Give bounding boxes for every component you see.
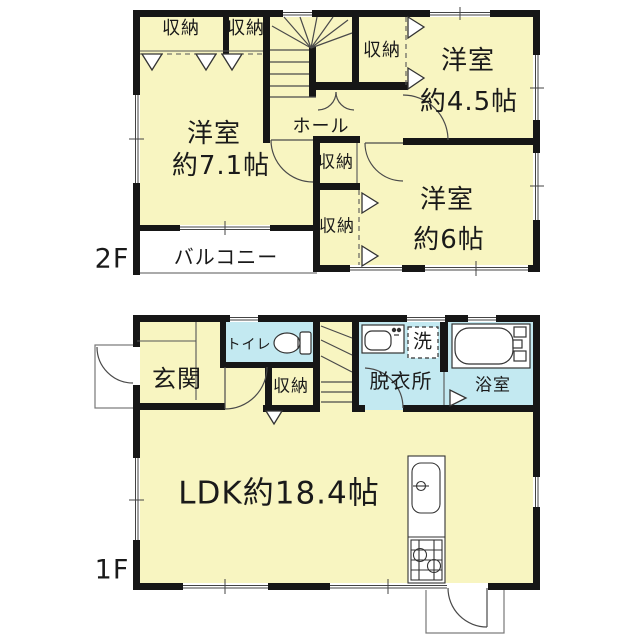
- bathtub-icon: [452, 324, 530, 368]
- room71-size: 約7.1帖: [172, 153, 270, 179]
- closet2f-e-label: 収納: [319, 219, 355, 236]
- room6-name: 洋室: [420, 187, 474, 213]
- entrance-label: 玄関: [152, 367, 202, 391]
- bathroom-label: 浴室: [475, 378, 511, 395]
- balcony-label: バルコニー: [174, 247, 279, 267]
- closet2f-c-label: 収納: [363, 42, 401, 60]
- washbasin-icon: [362, 325, 404, 353]
- back-porch: [426, 588, 504, 633]
- closet2f-a-label: 収納: [162, 20, 200, 38]
- floor2-label: 2F: [95, 246, 130, 273]
- toilet-icon: [274, 332, 311, 354]
- toilet-label: トイレ: [227, 338, 272, 352]
- entrance-porch: [95, 345, 135, 408]
- dressing-room-label: 脱衣所: [370, 371, 433, 391]
- room45-name: 洋室: [441, 48, 495, 74]
- hall-label: ホール: [293, 118, 350, 136]
- room71-name: 洋室: [187, 121, 241, 147]
- closet2f-d-label: 収納: [318, 155, 354, 172]
- room6-size: 約6帖: [413, 227, 485, 253]
- closet2f-b-label: 収納: [227, 20, 265, 38]
- closet1f-label: 収納: [273, 379, 309, 396]
- ldk-label: LDK約18.4帖: [178, 479, 380, 510]
- room45-size: 約4.5帖: [420, 89, 518, 115]
- floor1-label: 1F: [95, 557, 130, 584]
- laundry-label: 洗: [413, 333, 433, 352]
- floorplan: 2F 収納 収納 収納 洋室 約4.5帖 洋室 約7.1帖 ホール 収納 収納 …: [0, 0, 640, 640]
- floorplan-linework: [0, 0, 640, 640]
- kitchen-counter-icon: [408, 456, 445, 583]
